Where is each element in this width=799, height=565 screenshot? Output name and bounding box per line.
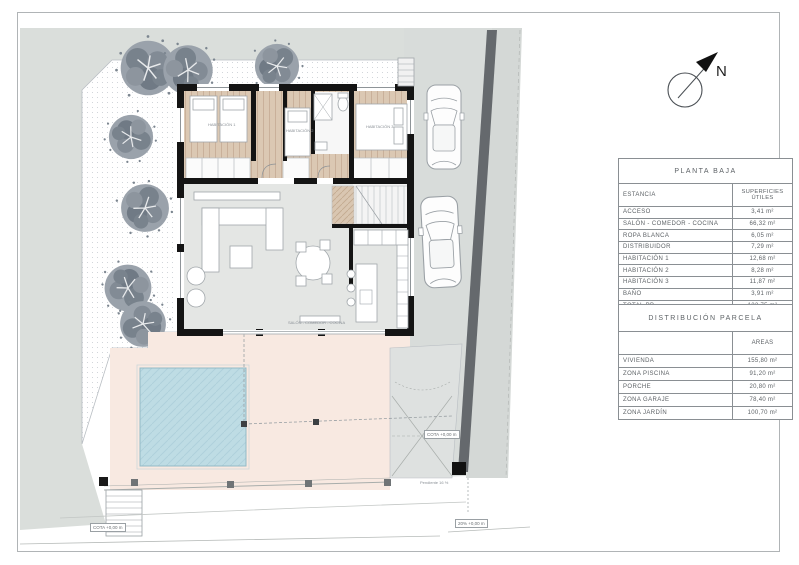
room-name-cell: ACCESO [619,207,733,218]
table-row: ZONA JARDÍN 100,70 m² [619,407,792,419]
house [177,58,414,336]
room-name-cell: DISTRIBUIDOR [619,242,733,253]
table-row: PORCHE 20,80 m² [619,381,792,394]
column-header-empty [619,332,733,354]
car-icon [417,196,465,289]
table-row: ROPA BLANCA 6,05 m² [619,230,792,242]
north-arrow: N [668,52,727,107]
pendiente-label: Pendiente 16 % [420,480,448,485]
room-label-hab3: HABITACIÓN 3 [366,124,394,129]
area-value-cell: 100,70 m² [733,407,792,419]
interior-stairs [332,186,409,224]
table-row: ZONA PISCINA 91,20 m² [619,368,792,381]
column-header-estancia: ESTANCIA [619,184,733,206]
glass-doors [223,330,385,335]
room-name-cell: ROPA BLANCA [619,230,733,241]
room-name-cell: HABITACIÓN 2 [619,265,733,276]
area-value-cell: 91,20 m² [733,368,792,380]
table-row: ZONA GARAJE 78,40 m² [619,394,792,407]
area-value-cell: 7,29 m² [733,242,792,253]
cota-label-street: 20% +0,00 m [455,519,488,528]
area-value-cell: 12,68 m² [733,254,792,265]
zone-name-cell: ZONA GARAJE [619,394,733,406]
table-row: ACCESO 3,41 m² [619,207,792,219]
table-row: DISTRIBUIDOR 7,29 m² [619,242,792,254]
zone-name-cell: VIVIENDA [619,355,733,367]
zone-name-cell: ZONA JARDÍN [619,407,733,419]
planta-baja-table-title: PLANTA BAJA [619,159,792,184]
area-value-cell: 6,05 m² [733,230,792,241]
column-header-superficies: SUPERFICIES ÚTILES [733,184,792,206]
area-value-cell: 155,80 m² [733,355,792,367]
pool [137,365,249,469]
north-label: N [716,63,727,80]
cota-label-stairs: COTA +0,00 m [90,523,126,532]
zone-name-cell: PORCHE [619,381,733,393]
table-row: HABITACIÓN 2 8,28 m² [619,265,792,277]
planta-baja-table-header: ESTANCIA SUPERFICIES ÚTILES [619,184,792,207]
area-value-cell: 78,40 m² [733,394,792,406]
room-label-salon: SALÓN - COMEDOR - COCINA [288,320,345,325]
area-value-cell: 66,32 m² [733,219,792,230]
distribucion-parcela-table-title: DISTRIBUCIÓN PARCELA [619,305,792,332]
room-name-cell: BAÑO [619,289,733,300]
area-value-cell: 8,28 m² [733,265,792,276]
room-label-hab2: HABITACIÓN 2 [286,128,314,133]
room-name-cell: SALÓN - COMEDOR - COCINA [619,219,733,230]
area-value-cell: 3,41 m² [733,207,792,218]
gate-post [452,462,466,475]
distribucion-parcela-table: DISTRIBUCIÓN PARCELA AREAS VIVIENDA 155,… [618,304,793,420]
north-arrowhead-icon [696,52,718,72]
car-icon [424,85,464,169]
zone-name-cell: ZONA PISCINA [619,368,733,380]
area-value-cell: 3,91 m² [733,289,792,300]
column-header-areas: AREAS [733,332,792,354]
table-row: SALÓN - COMEDOR - COCINA 66,32 m² [619,219,792,231]
table-row: VIVIENDA 155,80 m² [619,355,792,368]
room-name-cell: HABITACIÓN 3 [619,277,733,288]
cota-label-gate: COTA +0,00 m [424,430,460,439]
room-label-hab1: HABITACIÓN 1 [208,122,236,127]
distribucion-parcela-table-header: AREAS [619,332,792,355]
table-row: HABITACIÓN 1 12,68 m² [619,254,792,266]
area-value-cell: 11,87 m² [733,277,792,288]
table-row: HABITACIÓN 3 11,87 m² [619,277,792,289]
planta-baja-table: PLANTA BAJA ESTANCIA SUPERFICIES ÚTILES … [618,158,793,312]
table-row: BAÑO 3,91 m² [619,289,792,301]
area-value-cell: 20,80 m² [733,381,792,393]
room-name-cell: HABITACIÓN 1 [619,254,733,265]
